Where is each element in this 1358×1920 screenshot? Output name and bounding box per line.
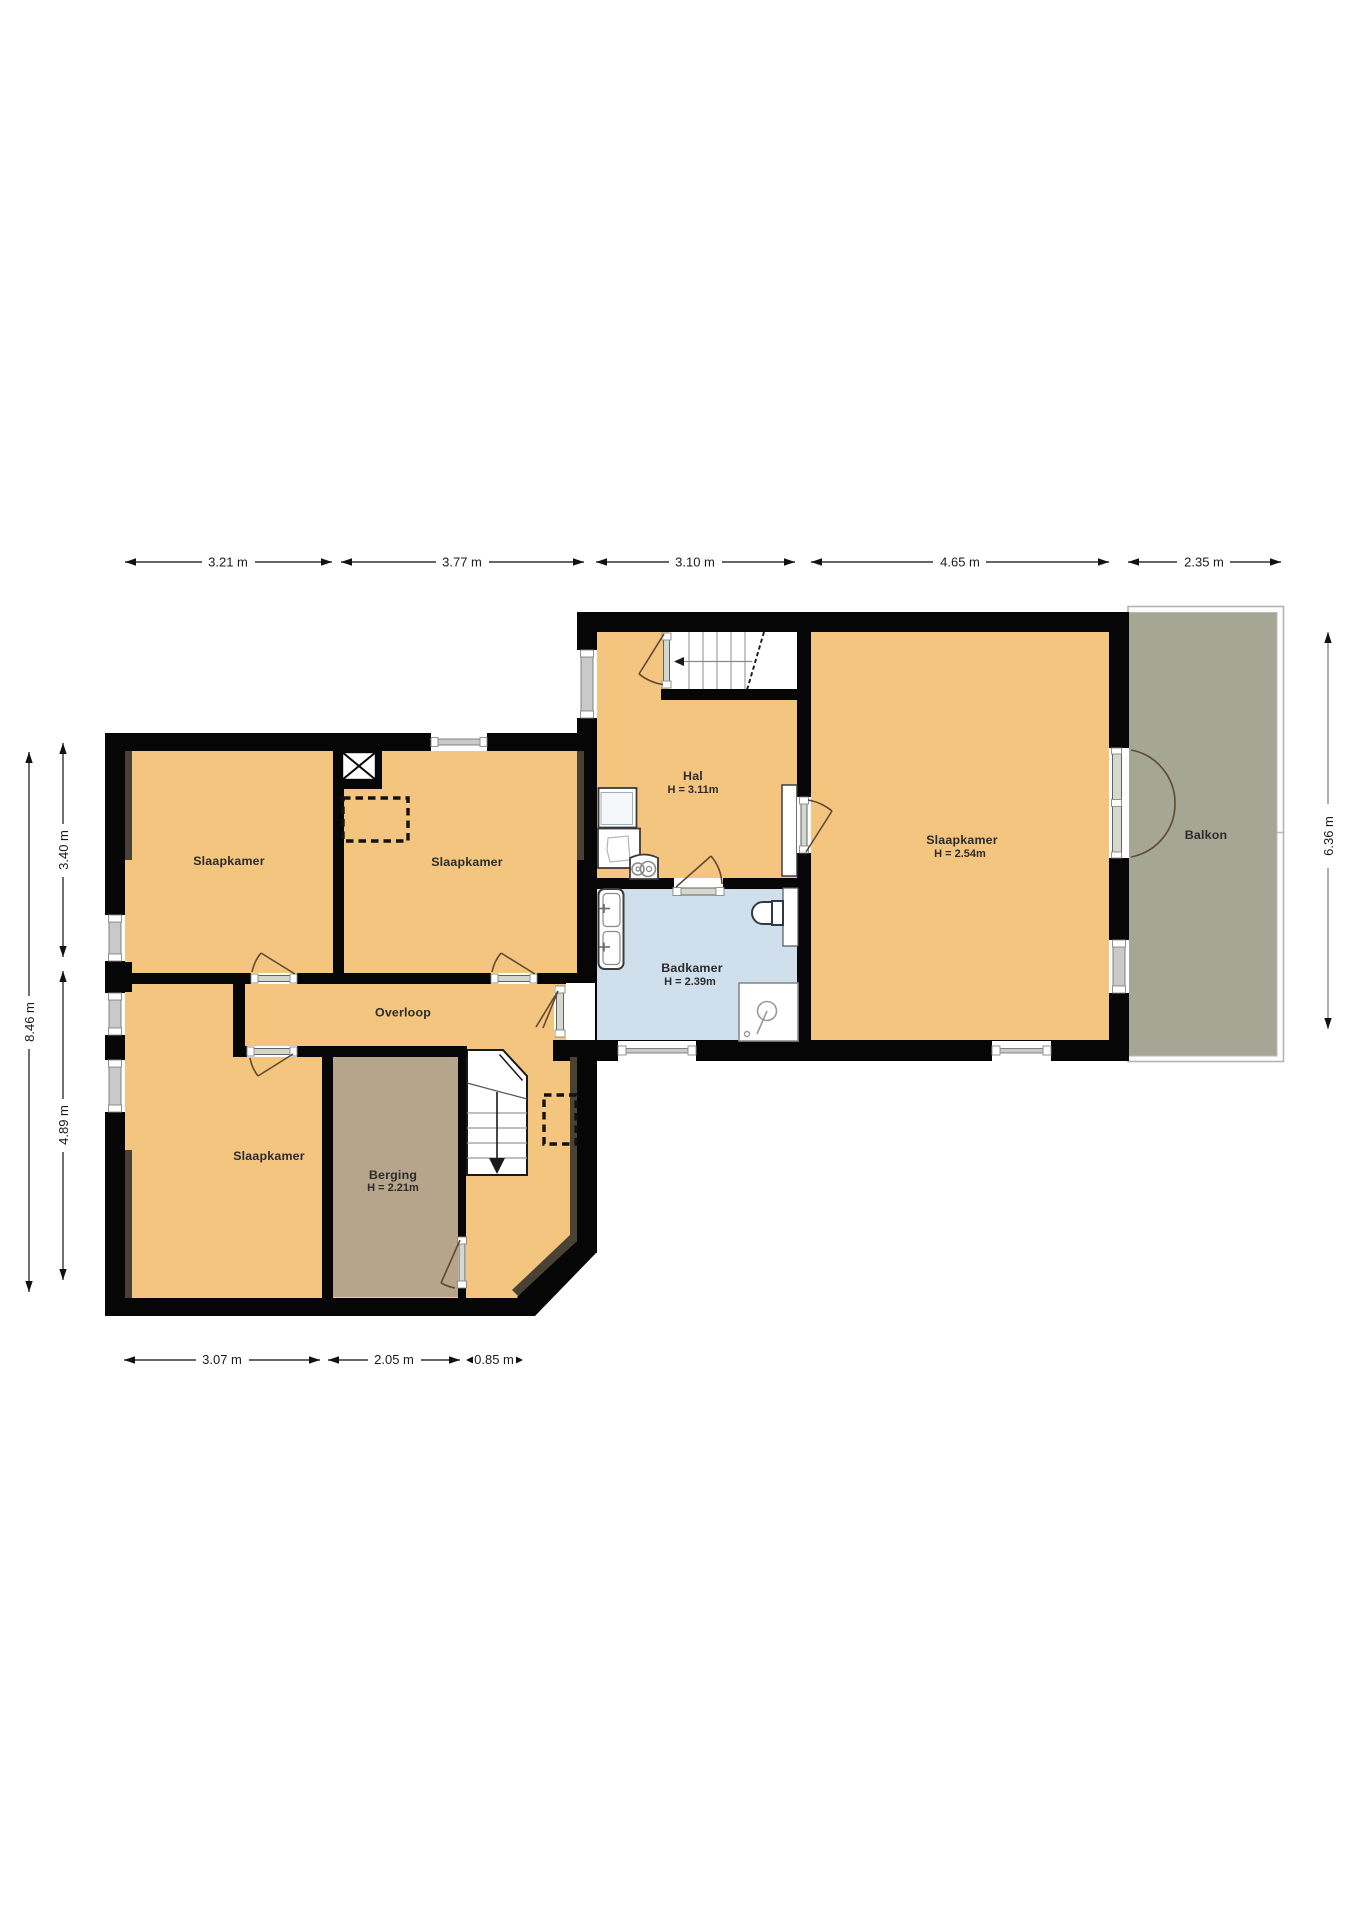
svg-text:H = 2.39m: H = 2.39m (664, 976, 716, 988)
svg-text:Badkamer: Badkamer (661, 961, 723, 975)
svg-text:2.35 m: 2.35 m (1184, 555, 1224, 570)
svg-text:Slaapkamer: Slaapkamer (233, 1149, 305, 1163)
svg-text:H = 2.54m: H = 2.54m (934, 848, 986, 860)
svg-text:Slaapkamer: Slaapkamer (926, 833, 998, 847)
svg-text:3.77 m: 3.77 m (442, 555, 482, 570)
svg-text:Balkon: Balkon (1185, 828, 1228, 842)
svg-text:H = 3.11m: H = 3.11m (667, 784, 718, 796)
svg-text:Overloop: Overloop (375, 1006, 431, 1020)
svg-text:3.07 m: 3.07 m (202, 1352, 242, 1367)
svg-text:Berging: Berging (369, 1168, 417, 1182)
svg-text:2.05 m: 2.05 m (374, 1352, 414, 1367)
svg-text:4.89 m: 4.89 m (56, 1105, 71, 1145)
svg-text:Slaapkamer: Slaapkamer (193, 854, 265, 868)
svg-text:4.65 m: 4.65 m (940, 555, 980, 570)
svg-text:6.36 m: 6.36 m (1321, 816, 1336, 856)
svg-text:Hal: Hal (683, 769, 703, 783)
svg-text:3.21 m: 3.21 m (208, 555, 248, 570)
svg-text:3.40 m: 3.40 m (56, 830, 71, 870)
svg-text:8.46 m: 8.46 m (22, 1002, 37, 1042)
svg-text:0.85 m: 0.85 m (474, 1352, 514, 1367)
svg-text:3.10 m: 3.10 m (675, 555, 715, 570)
svg-text:Slaapkamer: Slaapkamer (431, 855, 503, 869)
svg-text:H = 2.21m: H = 2.21m (367, 1182, 419, 1194)
